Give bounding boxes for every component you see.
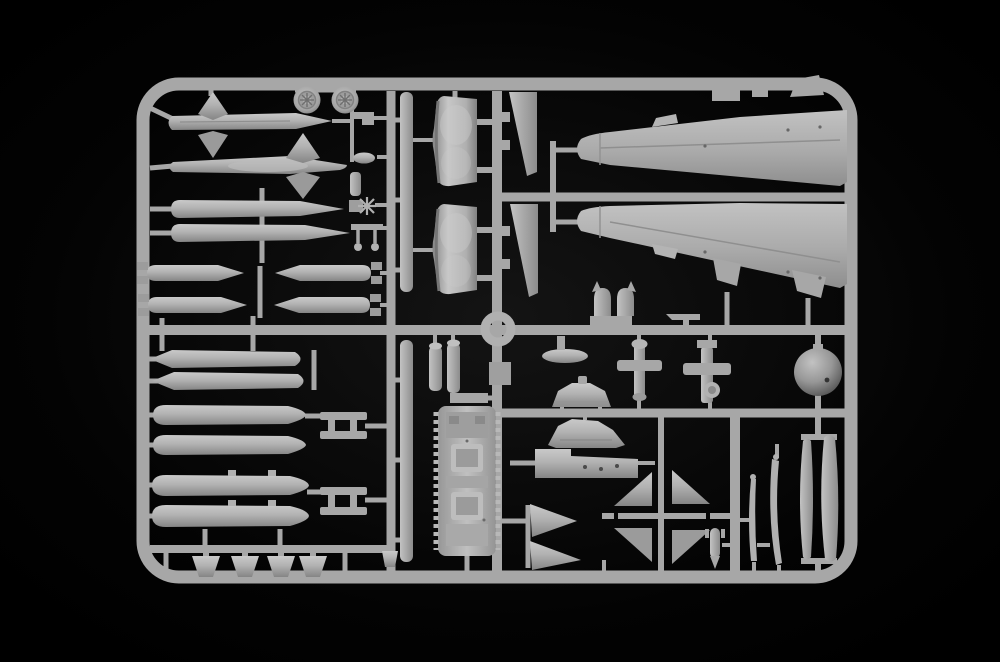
sprue-shape: [483, 519, 486, 522]
sprue-shape: [440, 213, 472, 253]
cockpit-tub: [436, 393, 498, 556]
sprue-shape: [615, 464, 619, 468]
sprue-shape: [371, 262, 382, 270]
sprue-shape: [228, 470, 236, 476]
sprue-shape: [697, 340, 717, 348]
sprue-shape: [683, 320, 689, 329]
sprue-shape: [338, 93, 352, 107]
sprue-shape: [320, 507, 367, 515]
sprue-shape: [632, 339, 648, 349]
sprue-shape: [268, 500, 276, 506]
sprue-shape: [786, 270, 789, 273]
sprue-shape: [440, 105, 472, 145]
sprue-shape: [441, 255, 471, 287]
sprue-shape: [818, 276, 821, 279]
wheel: [332, 87, 359, 114]
sprue-shape: [447, 343, 460, 393]
sprue-shape: [441, 147, 471, 179]
sprue-shape: [683, 363, 731, 375]
sprue-shape: [456, 449, 478, 467]
sprue-shape: [371, 276, 382, 284]
canopy-half-1: [800, 439, 813, 560]
sprue-shape: [320, 412, 367, 420]
sprue-shape: [456, 497, 478, 515]
sprue-shape: [501, 226, 510, 236]
sprue-shape: [152, 505, 309, 527]
sprue-shape: [750, 474, 756, 480]
sprue-shape: [446, 524, 488, 546]
slim-tank-1: [150, 350, 301, 368]
sprue-shape: [138, 308, 149, 316]
sprue-shape: [557, 336, 565, 350]
sprue-shape: [228, 500, 236, 506]
sprue-shape: [617, 288, 634, 316]
sprue-shape: [672, 314, 700, 320]
sprue-shape: [429, 343, 442, 350]
sprue-shape: [710, 528, 720, 558]
sprue-shape: [300, 93, 314, 107]
sprue-shape: [501, 112, 510, 122]
sprue-shape: [825, 378, 830, 383]
sprue-shape: [351, 224, 383, 230]
sprue-shape: [320, 487, 367, 495]
sprue-shape: [137, 276, 148, 284]
fuselage-tab: [712, 84, 740, 101]
sprue-shape: [350, 412, 357, 439]
sprue-shape: [599, 467, 603, 471]
square-box-part: [489, 362, 511, 385]
sprue-shape: [633, 393, 647, 401]
sprue-shape: [786, 128, 789, 131]
sprue-shape: [429, 346, 442, 391]
sprue-shape: [617, 360, 662, 371]
frame-tab: [752, 88, 768, 97]
star-part: [358, 197, 376, 215]
sprue-shape: [813, 344, 823, 350]
sprue-shape: [450, 393, 488, 403]
sprue-shape: [466, 440, 469, 443]
sprue-shape: [350, 487, 357, 515]
photo-stage: [0, 0, 1000, 662]
rail-strip-bottom: [400, 340, 413, 562]
slim-tank-2: [152, 372, 304, 390]
sprue-shape: [328, 487, 335, 515]
intake-1: [433, 96, 478, 186]
sprue-shape: [542, 349, 588, 363]
sprue-shape: [137, 262, 148, 270]
canopy-half-2: [821, 435, 838, 562]
disc-part: [353, 153, 375, 164]
sprue-shape: [138, 294, 149, 302]
sprue-shape: [371, 243, 379, 251]
sprue-shape: [328, 412, 335, 439]
sprue-shape: [320, 431, 367, 439]
sprue-shape: [590, 316, 632, 325]
sprue-shape: [705, 529, 709, 538]
sprue-shape: [501, 140, 510, 150]
sprue-shape: [370, 294, 381, 302]
sprue-shape: [370, 308, 381, 316]
sprue-shape: [152, 475, 309, 496]
sprue-photo: [0, 0, 1000, 662]
sprue-shape: [446, 476, 488, 488]
wheel: [294, 87, 321, 114]
sprue-shape: [446, 412, 488, 438]
sprue-shape: [818, 125, 821, 128]
drop-tank-2: [153, 435, 306, 455]
sprue-shape: [268, 470, 276, 476]
intake-2: [433, 204, 478, 294]
drop-tank-1: [153, 405, 306, 425]
sprue-shape: [354, 243, 362, 251]
sprue-shape: [708, 386, 716, 394]
sprue-shape: [594, 288, 611, 316]
sprue-shape: [703, 250, 706, 253]
sprue-shape: [583, 465, 587, 469]
sprue-shape: [475, 416, 485, 424]
sprue-shape: [721, 529, 725, 538]
sprue-shape: [554, 401, 609, 407]
sprue-shape: [578, 376, 587, 384]
sprue-shape: [228, 160, 308, 172]
rail-strip-top: [400, 92, 413, 292]
sprue-shape: [773, 454, 779, 460]
cylinder-part: [350, 172, 361, 196]
sprue-shape: [703, 144, 706, 147]
sprue-shape: [449, 416, 459, 424]
sprue-shape: [794, 348, 842, 396]
sprue-shape: [501, 259, 510, 269]
sprue-shape: [447, 340, 460, 347]
